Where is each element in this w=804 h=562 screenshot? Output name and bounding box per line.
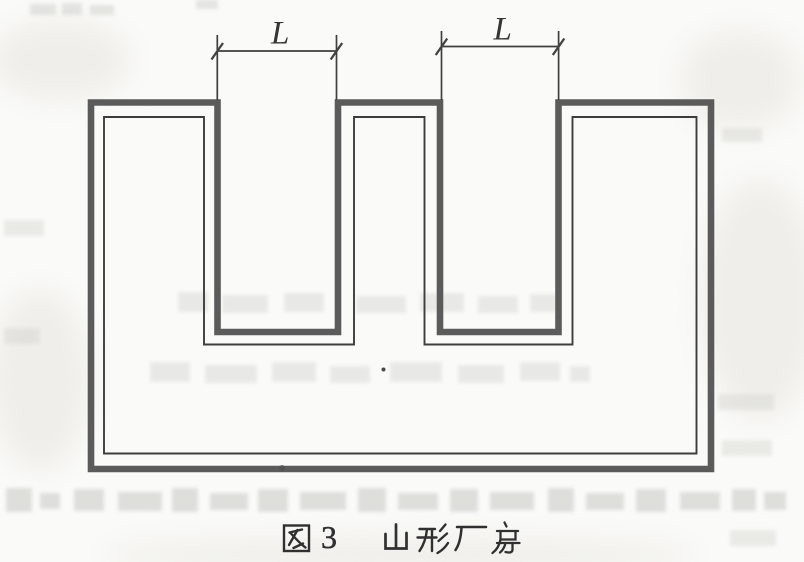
svg-text:L: L — [270, 16, 289, 52]
svg-text:L: L — [493, 12, 512, 48]
svg-text:3: 3 — [321, 519, 337, 555]
